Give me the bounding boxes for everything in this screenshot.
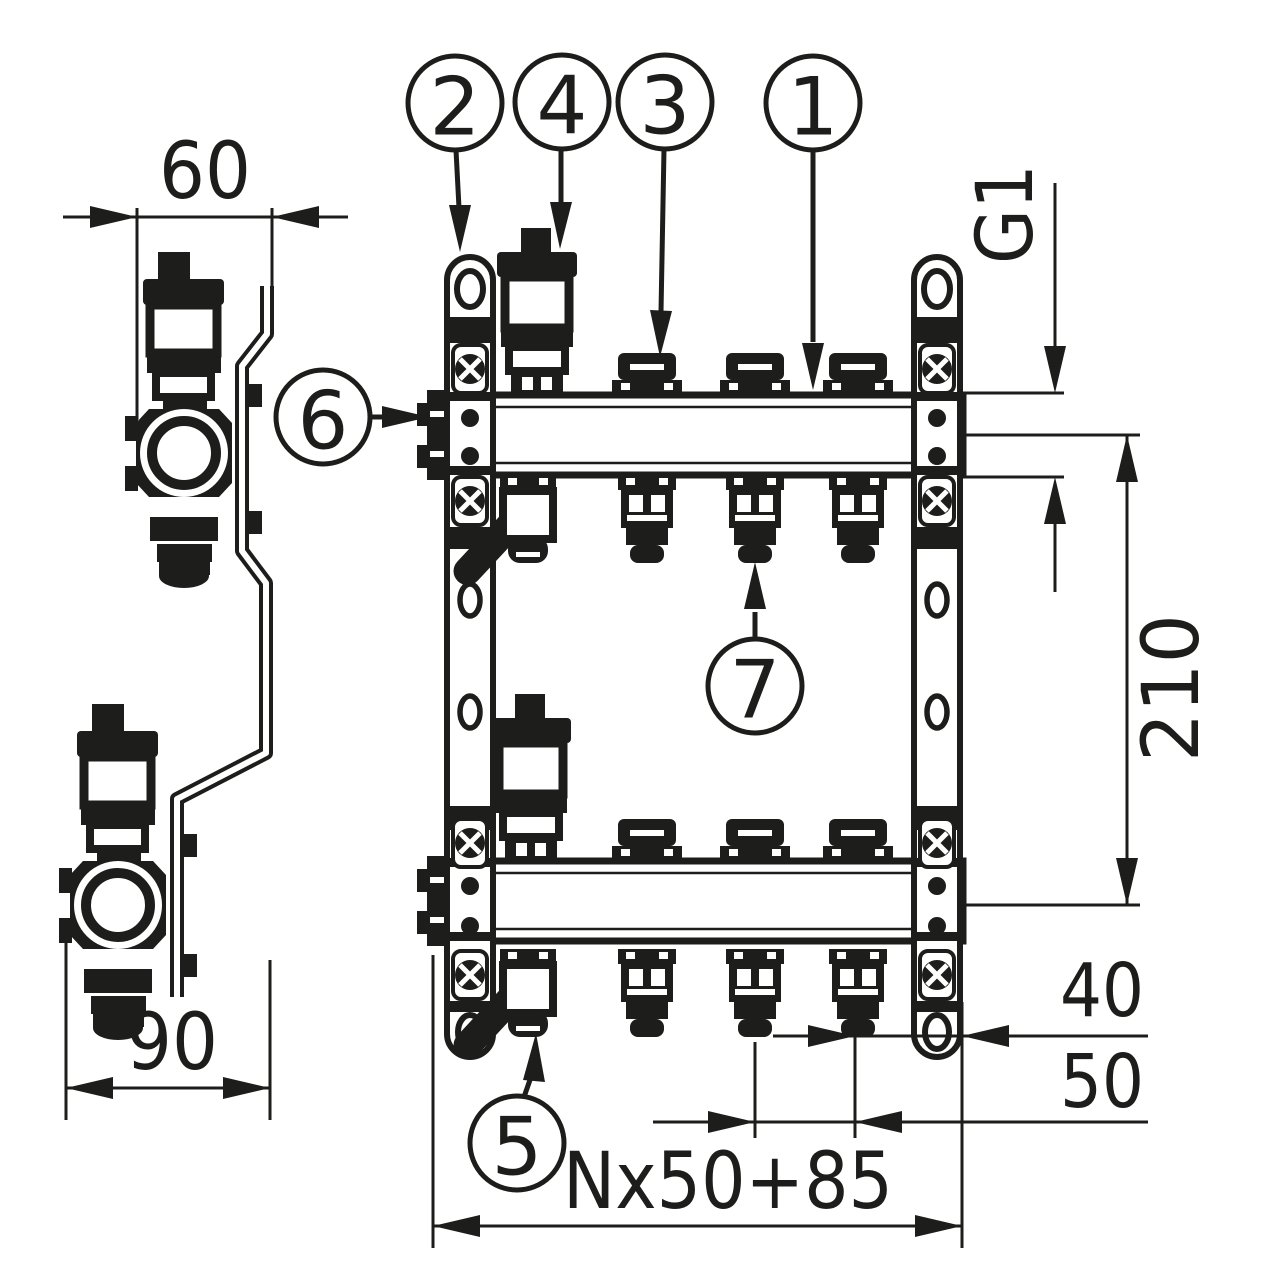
return-bar (417, 856, 963, 946)
dim-g1: G1 (961, 164, 1066, 592)
dim-edge-offset-label: 40 (1060, 948, 1144, 1034)
air-vent-bottom (491, 694, 571, 861)
dim-bracket-width-label: 60 (159, 127, 251, 217)
side-view (59, 252, 267, 1040)
side-valve-upper (125, 252, 232, 588)
dimensions: 60 90 G1 210 (63, 127, 1217, 1248)
right-bracket (914, 257, 960, 1057)
callout-1: 1 (766, 56, 860, 390)
supply-bar (417, 390, 963, 480)
dim-50: 50 (653, 1039, 1148, 1133)
callout-3-label: 3 (640, 60, 691, 153)
callout-1-label: 1 (788, 61, 839, 154)
dim-total-length-label: Nx50+85 (563, 1137, 893, 1227)
side-valve-lower (59, 704, 166, 1040)
callouts: 2 4 3 1 6 (276, 55, 860, 1194)
callout-6-label: 6 (298, 375, 349, 468)
manifold-technical-drawing: 60 90 G1 210 (0, 0, 1280, 1280)
dim-bracket-depth-label: 90 (126, 998, 218, 1088)
callout-4-label: 4 (537, 60, 588, 153)
dim-axis-spacing-label: 210 (1127, 614, 1217, 762)
dim-210: 210 (966, 435, 1217, 905)
callout-5-label: 5 (492, 1101, 543, 1194)
dim-outlet-spacing-label: 50 (1060, 1039, 1144, 1125)
callout-2-label: 2 (430, 61, 481, 154)
callout-7-label: 7 (730, 644, 781, 737)
callout-3: 3 (618, 55, 712, 357)
callout-7: 7 (708, 562, 802, 737)
technical-drawing-page: 60 90 G1 210 (0, 0, 1280, 1280)
front-view (417, 228, 963, 1065)
callout-4: 4 (515, 55, 609, 249)
left-bracket (447, 257, 493, 1057)
callout-2: 2 (408, 56, 502, 252)
callout-5: 5 (470, 1033, 564, 1194)
air-vent-top (497, 228, 577, 395)
dim-main-connection-label: G1 (961, 164, 1051, 264)
callout-6: 6 (276, 370, 429, 468)
